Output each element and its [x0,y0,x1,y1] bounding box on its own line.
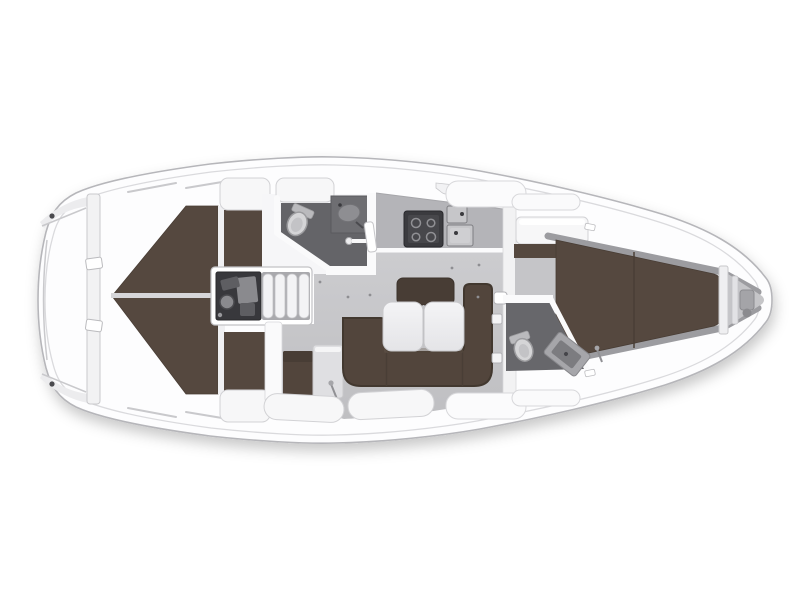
floor-screw [347,296,350,299]
step-tread-3 [287,274,297,318]
table-leaf-left [383,302,423,351]
hull-bench-fwd [347,389,434,420]
windlass-drum [743,309,752,318]
floor-screw [477,296,480,299]
stern-cleat-bottom [49,381,54,386]
nav-area [283,345,343,399]
hull-bench-aft [263,393,344,423]
chart-seat-highlight [315,347,341,352]
companionway-side-wall [265,322,282,402]
aft-cabinet-starboard [220,390,270,422]
engine-bolt [218,313,222,317]
aft-berth-divider [111,293,219,298]
table-support-knob [328,380,333,385]
aft-head-faucet [338,203,342,207]
engine-pump [240,303,255,316]
stern-cleat-top [49,213,54,218]
step-tread-4 [299,274,309,318]
fwd-head-top-wall [503,295,553,303]
grab-rail-port [512,194,580,210]
engine-block [236,276,259,304]
aft-wardrobe-port [224,210,266,268]
bulkhead-hinge-top [492,314,502,324]
galley-sink-large-basin [450,228,470,243]
galley-sink-small [447,206,467,223]
floor-screw [451,267,454,270]
shower-mixer [346,238,353,245]
engine-filter [220,295,234,309]
fwd-locker-highlight [519,219,585,225]
yacht-floorplan [0,0,800,600]
floor-screw [478,264,481,267]
aft-head-cabinet [276,178,334,202]
yacht-floorplan-image [0,0,800,600]
stern-hinge-top [85,257,102,270]
windlass-body [740,290,754,310]
bow-bulkhead-1 [719,266,728,334]
table-leaf-right [424,302,464,351]
nav-bench-back [283,351,313,362]
floor-screw [319,281,322,284]
floor-screw [369,294,372,297]
galley-sink-large-drain [454,231,458,235]
stern-hinge-bottom [85,319,102,332]
stern-bulkhead [87,194,100,404]
galley-counter-edge [376,248,503,253]
bow-bulkhead-2 [732,276,738,324]
fwd-berth-step [514,244,558,258]
chart-seat [313,345,343,398]
settee-backrest [397,278,454,305]
aft-wardrobe-starboard [224,332,266,396]
step-tread-2 [275,274,285,318]
grab-rail-starboard [512,390,580,406]
bulkhead-hinge-bottom [492,353,502,363]
step-tread-1 [263,274,273,318]
fwd-pole-knob [595,346,600,351]
galley-sink-small-drain [460,212,464,216]
